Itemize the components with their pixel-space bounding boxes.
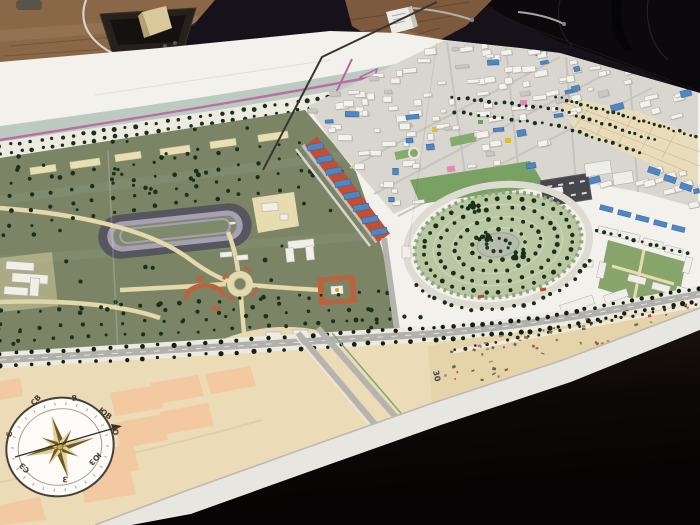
photo-of-city-masterplan-model: 30 xyxy=(0,0,700,525)
stable-building xyxy=(262,202,279,211)
terracotta-plaza xyxy=(317,275,357,306)
flowerbed xyxy=(196,276,204,281)
compass-label-s: Ю xyxy=(110,426,120,436)
compass-label-n: С xyxy=(5,431,14,437)
microphone-head xyxy=(562,22,566,26)
scene-canvas: 30 xyxy=(0,0,700,525)
microphone-head xyxy=(470,18,474,22)
flowerbed xyxy=(212,306,220,311)
park-roundel-center xyxy=(234,278,246,290)
track-apron xyxy=(252,192,299,233)
panel-connector xyxy=(173,41,177,45)
compass-label-w: З xyxy=(62,475,68,484)
stable-building xyxy=(280,214,288,220)
microphone-base xyxy=(16,0,42,10)
palace-complex xyxy=(0,252,58,312)
park-pavilion xyxy=(402,246,411,258)
roundabout xyxy=(409,148,419,158)
